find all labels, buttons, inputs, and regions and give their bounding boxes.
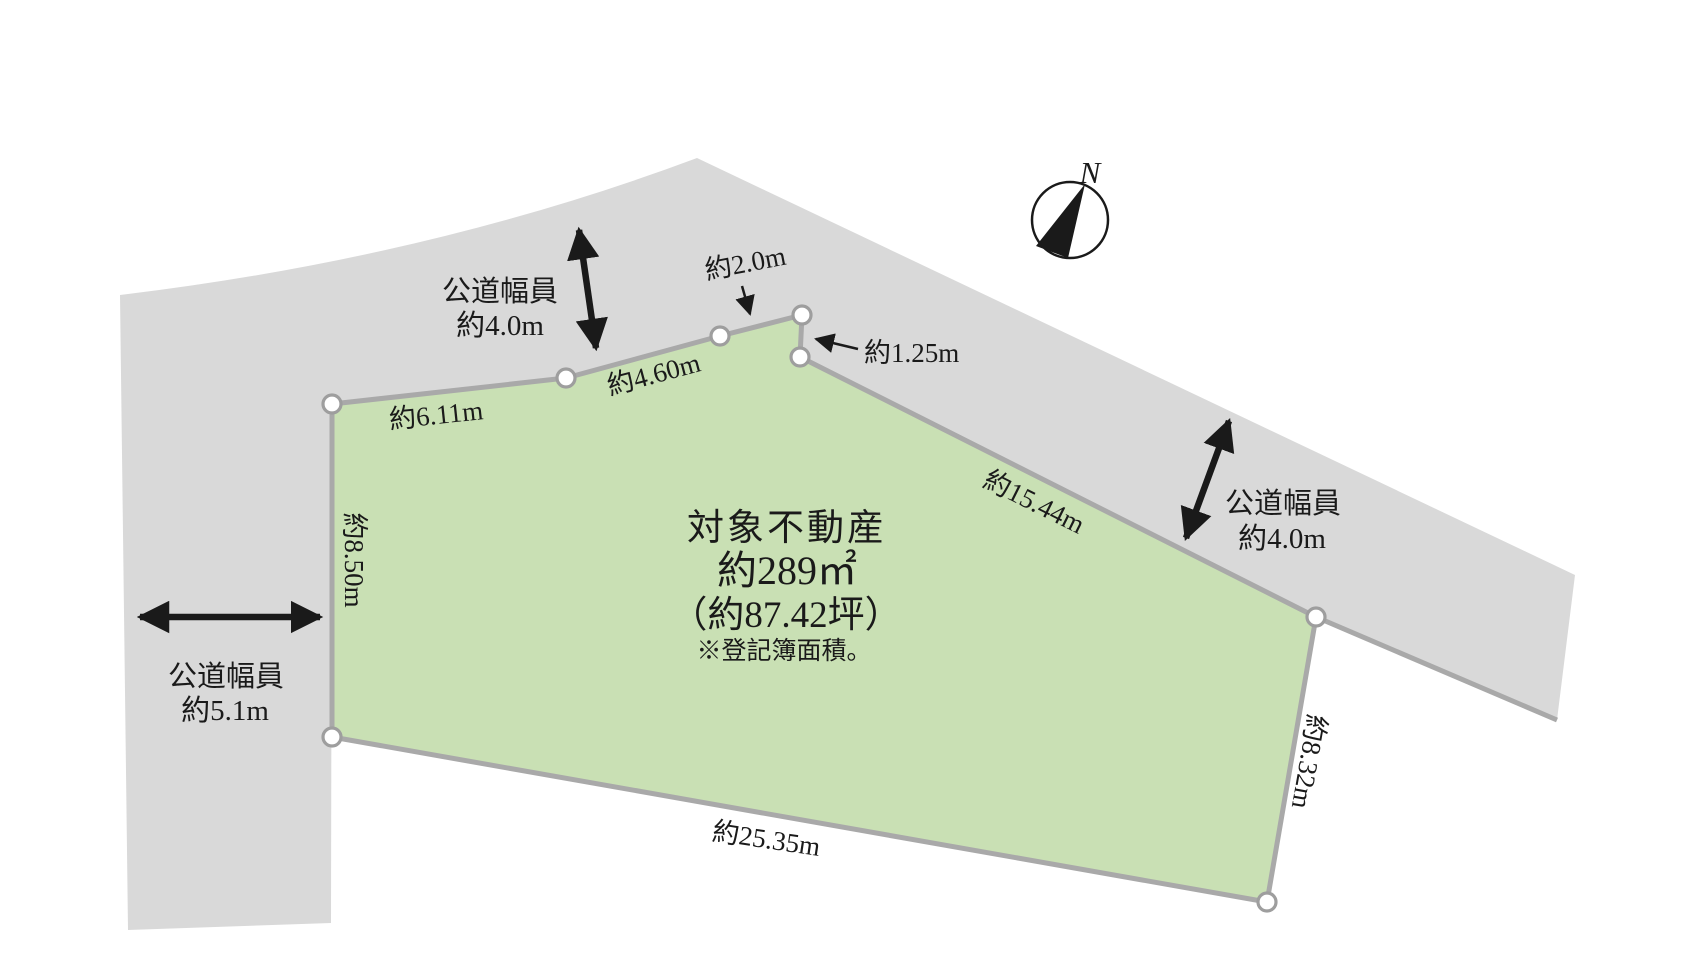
vertex-marker-7 — [1258, 893, 1276, 911]
road-left-label-name: 公道幅員 — [168, 660, 284, 693]
land-plot-diagram: 約6.11m 約4.60m 約2.0m 約1.25m 約15.44m 約8.32… — [0, 0, 1686, 976]
compass-north-label: N — [1079, 155, 1103, 190]
parcel-note: ※登記簿面積。 — [696, 637, 871, 665]
vertex-marker-4 — [793, 306, 811, 324]
vertex-marker-5 — [791, 348, 809, 366]
edge-label-1-25m: 約1.25m — [864, 338, 959, 368]
parcel-area-sqm: 約289㎡ — [717, 548, 857, 593]
vertex-marker-8 — [323, 728, 341, 746]
road-right-label-width: 約4.0m — [1238, 522, 1326, 555]
road-top-label-name: 公道幅員 — [442, 275, 558, 308]
vertex-marker-3 — [711, 327, 729, 345]
vertex-marker-2 — [557, 369, 575, 387]
parcel-title: 対象不動産 — [687, 507, 887, 549]
parcel-area-tsubo: （約87.42坪） — [670, 594, 901, 636]
compass: N — [1032, 155, 1108, 258]
road-left-label-width: 約5.1m — [181, 694, 269, 727]
edge-label-8-50m: 約8.50m — [339, 512, 369, 607]
road-right-label-name: 公道幅員 — [1225, 487, 1341, 520]
road-top-label-width: 約4.0m — [456, 309, 544, 342]
vertex-marker-1 — [323, 395, 341, 413]
vertex-marker-6 — [1307, 608, 1325, 626]
